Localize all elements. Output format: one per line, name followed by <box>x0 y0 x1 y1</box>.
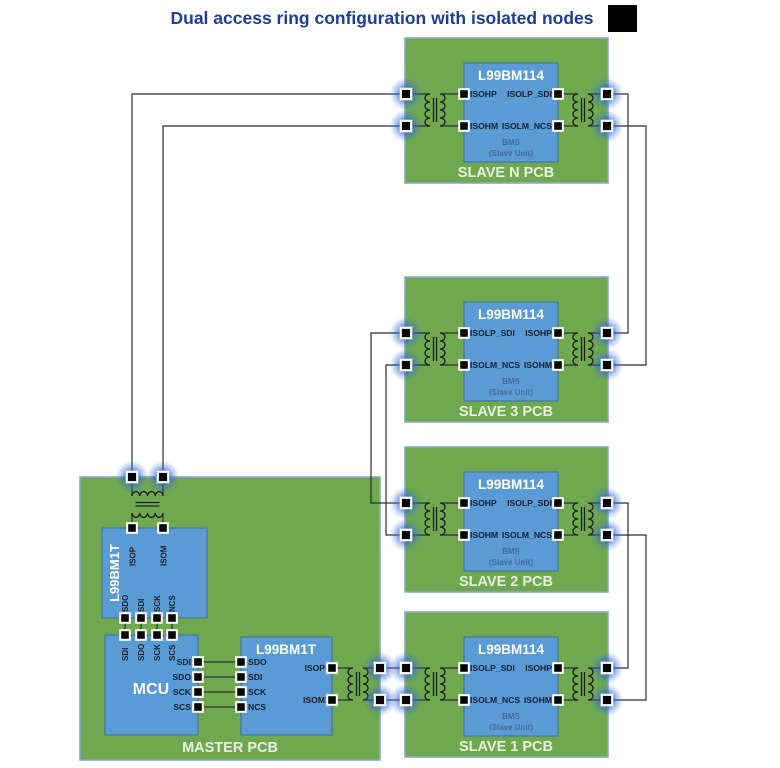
pin-node <box>152 613 162 623</box>
pin-node <box>459 498 469 508</box>
pin-label: SDI <box>121 648 130 661</box>
pcb-label: SLAVE 1 PCB <box>459 739 553 755</box>
pin-node <box>459 121 469 131</box>
pin-label: ISOLM_NCS <box>470 360 520 370</box>
pin-label: SDI <box>248 672 262 682</box>
pin-node <box>236 657 246 667</box>
pin-node <box>553 328 563 338</box>
bms-label: (Slave Unit) <box>489 723 533 732</box>
bms-label: (Slave Unit) <box>489 149 533 158</box>
pin-label: ISOLP_SDI <box>470 328 515 338</box>
pin-node <box>459 695 469 705</box>
connector-node <box>390 487 423 520</box>
pin-label: SDI <box>137 599 146 612</box>
pin-label: ISOHP <box>470 498 497 508</box>
pcb-label: MASTER PCB <box>182 740 278 756</box>
pin-label: ISOHP <box>470 89 497 99</box>
pin-label: NCS <box>248 702 266 712</box>
pin-label: ISOLM_NCS <box>470 695 520 705</box>
connector-node <box>591 652 624 685</box>
pin-label: ISOP <box>304 663 325 673</box>
pin-node <box>193 702 203 712</box>
pcb-label: SLAVE N PCB <box>458 165 554 181</box>
pin-node <box>553 121 563 131</box>
pin-label: SCK <box>248 687 267 697</box>
bms-label: BMS <box>502 138 520 147</box>
connector-node <box>591 317 624 350</box>
pin-node <box>152 630 162 640</box>
connector-node <box>591 78 624 111</box>
pin-label: ISOLP_SDI <box>470 663 515 673</box>
chip-title: MCU <box>133 681 169 698</box>
connector-node <box>591 487 624 520</box>
pin-label: SCK <box>153 595 162 612</box>
pin-node <box>327 695 337 705</box>
pin-node <box>553 89 563 99</box>
connector-node <box>364 684 397 717</box>
pin-node <box>193 687 203 697</box>
pin-label: SCS <box>168 644 177 661</box>
chip-title: L99BM1T <box>107 544 122 602</box>
chip-title: L99BM114 <box>478 307 545 322</box>
connector-node <box>390 519 423 552</box>
pin-node <box>167 613 177 623</box>
pin-label: SDO <box>172 672 191 682</box>
pin-label: SCK <box>173 687 192 697</box>
pin-label: SCK <box>153 644 162 661</box>
pin-label: ISOLM_NCS <box>502 530 552 540</box>
pin-node <box>136 613 146 623</box>
connector-node <box>116 461 149 494</box>
pin-label: ISOHM <box>524 695 552 705</box>
pcb-label: SLAVE 2 PCB <box>459 574 553 590</box>
pin-node <box>459 328 469 338</box>
pin-node <box>120 630 130 640</box>
pcb-label: SLAVE 3 PCB <box>459 404 553 420</box>
pin-node <box>553 498 563 508</box>
bms-label: BMS <box>502 377 520 386</box>
diagram-title: Dual access ring configuration with isol… <box>171 8 594 28</box>
pin-node <box>167 630 177 640</box>
pin-node <box>459 89 469 99</box>
pin-label: SDO <box>121 595 130 612</box>
connector-node <box>591 110 624 143</box>
pin-node <box>459 530 469 540</box>
pin-label: ISOHM <box>524 360 552 370</box>
pin-node <box>193 672 203 682</box>
pin-label: ISOHP <box>525 663 552 673</box>
chip-title: L99BM1T <box>256 642 317 657</box>
pin-label: ISOM <box>160 545 169 566</box>
pin-label: ISOLP_SDI <box>507 498 552 508</box>
pin-node <box>136 630 146 640</box>
pin-node <box>459 663 469 673</box>
black-marker <box>608 5 637 32</box>
pin-node <box>553 530 563 540</box>
pin-node <box>553 360 563 370</box>
pin-label: ISOP <box>129 546 138 566</box>
pin-node <box>236 672 246 682</box>
pin-node <box>127 523 137 533</box>
connector-node <box>591 349 624 382</box>
pin-node <box>120 613 130 623</box>
chip-title: L99BM114 <box>478 68 545 83</box>
pin-label: NCS <box>168 594 177 612</box>
pin-label: ISOLM_NCS <box>502 121 552 131</box>
connector-node <box>147 461 180 494</box>
connector-node <box>390 317 423 350</box>
ring-configuration-diagram: Dual access ring configuration with isol… <box>0 0 780 768</box>
pin-node <box>459 360 469 370</box>
connector-node <box>591 684 624 717</box>
pin-label: ISOLP_SDI <box>507 89 552 99</box>
pin-label: ISOHP <box>525 328 552 338</box>
pin-node <box>158 523 168 533</box>
pin-label: ISOHM <box>470 121 498 131</box>
connector-node <box>390 349 423 382</box>
chip-title: L99BM114 <box>478 642 545 657</box>
bms-label: (Slave Unit) <box>489 558 533 567</box>
pin-node <box>236 687 246 697</box>
pin-node <box>236 702 246 712</box>
pin-label: SDI <box>177 657 191 667</box>
chip-title: L99BM114 <box>478 477 545 492</box>
pin-node <box>193 657 203 667</box>
bms-label: BMS <box>502 547 520 556</box>
pin-label: ISOHM <box>470 530 498 540</box>
pin-label: SCS <box>173 702 191 712</box>
connector-node <box>364 652 397 685</box>
bms-label: (Slave Unit) <box>489 388 533 397</box>
pin-node <box>553 663 563 673</box>
pin-label: ISOM <box>303 695 325 705</box>
pin-label: SDO <box>137 644 146 661</box>
bms-label: BMS <box>502 712 520 721</box>
pin-node <box>327 663 337 673</box>
pin-label: SDO <box>248 657 267 667</box>
connector-node <box>390 110 423 143</box>
pin-node <box>553 695 563 705</box>
connector-node <box>390 78 423 111</box>
connector-node <box>591 519 624 552</box>
